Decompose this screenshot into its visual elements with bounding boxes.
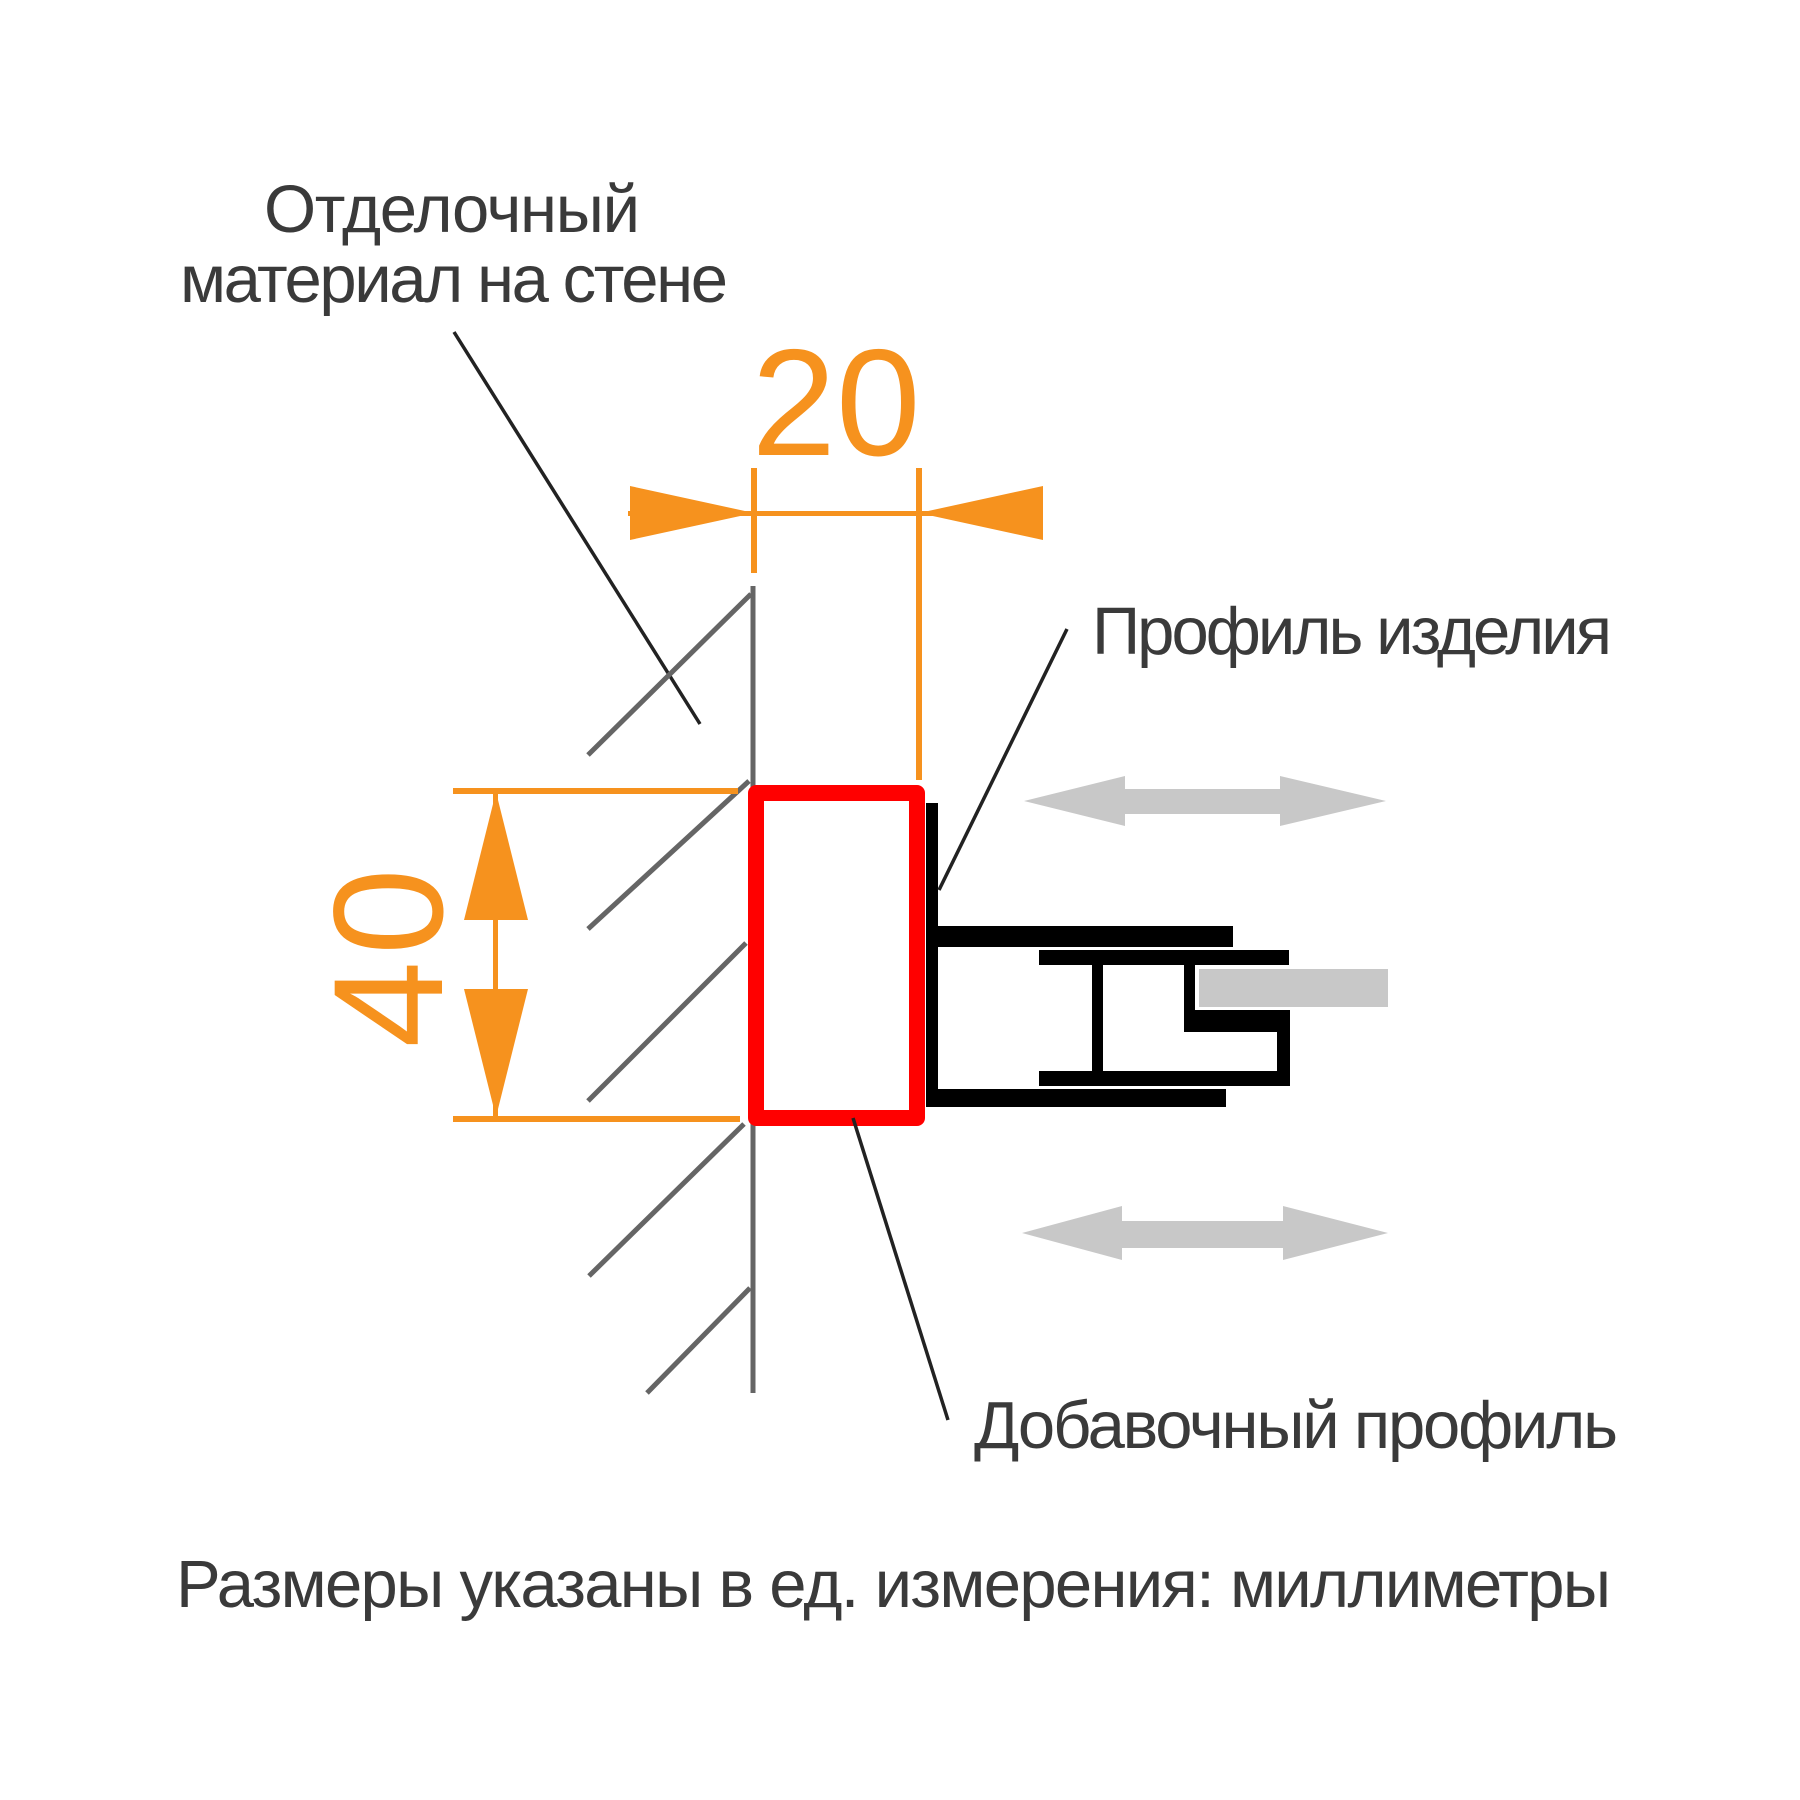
svg-text:Размеры указаны в ед. измерени: Размеры указаны в ед. измерения: миллиме… <box>176 1547 1611 1622</box>
svg-text:Добавочный профиль: Добавочный профиль <box>974 1388 1618 1463</box>
svg-text:материал на стене: материал на стене <box>180 242 728 317</box>
svg-text:40: 40 <box>302 862 476 1048</box>
svg-text:Отделочный: Отделочный <box>264 172 640 247</box>
svg-text:Профиль изделия: Профиль изделия <box>1092 594 1612 669</box>
svg-text:20: 20 <box>751 318 920 488</box>
